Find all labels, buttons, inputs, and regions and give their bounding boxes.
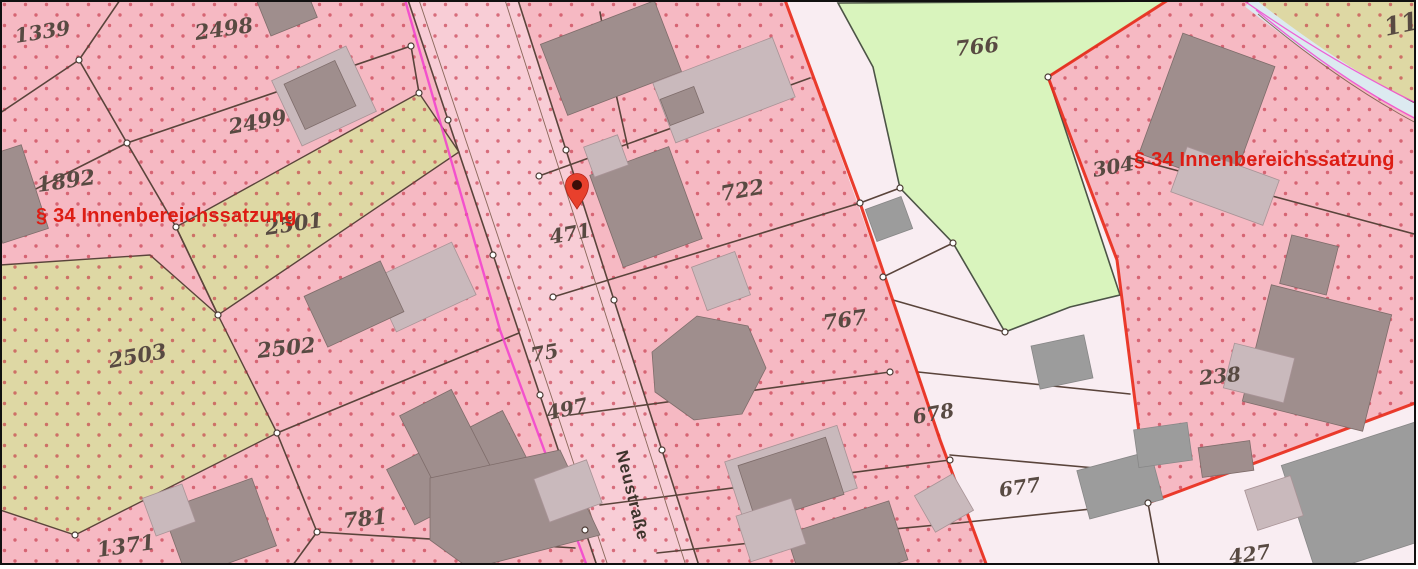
survey-point [582,527,588,533]
survey-point [124,140,130,146]
cadastral-map[interactable]: 1339249824991892250125032502137178175497… [0,0,1418,569]
survey-point [1002,329,1008,335]
survey-point [536,173,542,179]
survey-point [897,185,903,191]
zone-34-label-right: § 34 Innenbereichssatzung [1134,149,1395,171]
survey-point [490,252,496,258]
survey-point [887,369,893,375]
parcel-label-781: 781 [342,504,388,533]
parcel-label-766: 766 [954,31,1001,60]
survey-point [274,430,280,436]
survey-point [76,57,82,63]
cadastral-map-canvas[interactable]: 1339249824991892250125032502137178175497… [0,0,1418,569]
survey-point [857,200,863,206]
survey-point [215,312,221,318]
survey-point [445,117,451,123]
survey-point [1145,500,1151,506]
survey-point [880,274,886,280]
parcel-label-75: 75 [529,338,561,366]
survey-point [947,457,953,463]
survey-point [550,294,556,300]
survey-point [563,147,569,153]
parcel-label-238: 238 [1197,362,1242,390]
survey-point [1045,74,1051,80]
zone-34-label-left: § 34 Innenbereichssatzung [36,205,297,227]
survey-point [659,447,665,453]
survey-point [314,529,320,535]
survey-point [416,90,422,96]
survey-point [950,240,956,246]
survey-point [72,532,78,538]
survey-point [611,297,617,303]
survey-point [537,392,543,398]
survey-point [408,43,414,49]
